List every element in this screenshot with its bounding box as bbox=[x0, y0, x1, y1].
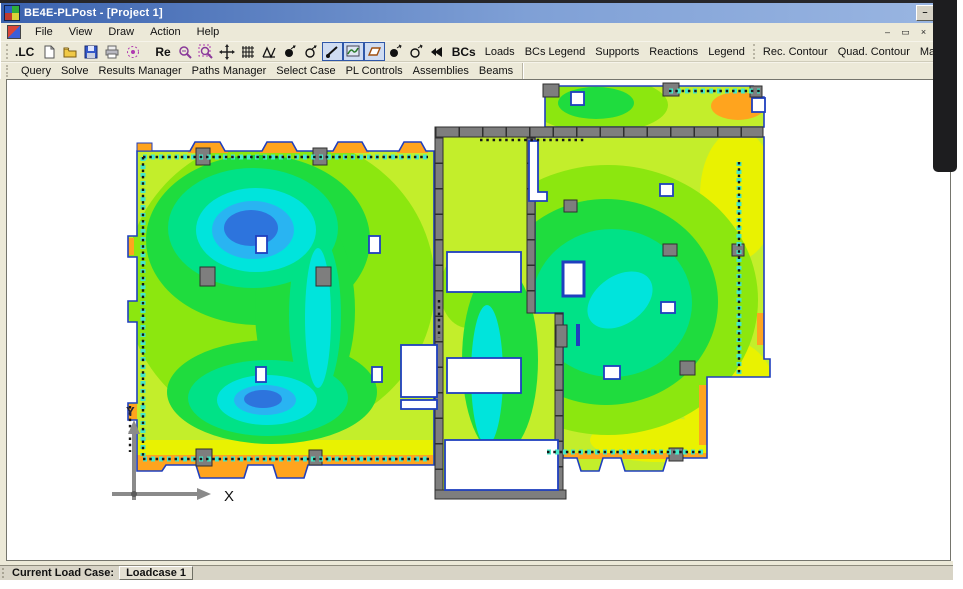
menu-help[interactable]: Help bbox=[189, 24, 228, 40]
load-case-value[interactable]: Loadcase 1 bbox=[119, 566, 193, 580]
open-folder-icon bbox=[62, 44, 78, 60]
node-outline-icon bbox=[303, 44, 319, 60]
zoom-window-icon bbox=[198, 44, 214, 60]
load-case-label: Current Load Case: bbox=[12, 567, 114, 579]
document-icon bbox=[7, 25, 21, 39]
zoom-out-icon bbox=[177, 44, 193, 60]
secondary-toolbar: Query Solve Results Manager Paths Manage… bbox=[1, 62, 957, 80]
contour-toggle-icon bbox=[346, 44, 361, 59]
column bbox=[663, 244, 677, 256]
strip-toggle-button[interactable] bbox=[322, 42, 343, 61]
node-icon bbox=[282, 44, 298, 60]
pan-icon bbox=[219, 44, 235, 60]
child-restore-button[interactable]: ▭ bbox=[898, 26, 913, 39]
new-button[interactable] bbox=[38, 42, 59, 61]
wall bbox=[435, 490, 566, 499]
print-icon bbox=[104, 44, 120, 60]
wall-pier bbox=[576, 324, 580, 346]
loads-arrows-icon bbox=[429, 44, 445, 60]
load-outline-button[interactable] bbox=[406, 42, 427, 61]
mesh-button[interactable] bbox=[259, 42, 280, 61]
opening bbox=[752, 98, 765, 112]
grid-button[interactable] bbox=[238, 42, 259, 61]
child-close-button[interactable]: × bbox=[916, 26, 931, 39]
opening bbox=[447, 252, 521, 292]
corner-tab bbox=[137, 143, 152, 151]
menu-draw[interactable]: Draw bbox=[100, 24, 142, 40]
patch-toggle-icon bbox=[367, 44, 382, 59]
toolbar-grip[interactable] bbox=[753, 44, 755, 59]
statusbar-grip bbox=[2, 568, 7, 578]
drawing-canvas[interactable]: X Y bbox=[6, 79, 951, 561]
right-white-column bbox=[957, 0, 963, 589]
opening bbox=[445, 440, 558, 490]
toolbar-grip[interactable] bbox=[6, 44, 8, 59]
loads-arrows-button[interactable] bbox=[427, 42, 448, 61]
wall bbox=[435, 127, 763, 137]
status-bar: Current Load Case: Loadcase 1 bbox=[0, 565, 953, 580]
paths-manager-button[interactable]: Paths Manager bbox=[187, 63, 272, 79]
column bbox=[680, 361, 695, 375]
print-button[interactable] bbox=[101, 42, 122, 61]
select-case-button[interactable]: Select Case bbox=[271, 63, 340, 79]
load-outline-icon bbox=[408, 44, 424, 60]
opening bbox=[401, 345, 437, 397]
bcs-button[interactable]: BCs bbox=[448, 44, 480, 60]
opening bbox=[571, 92, 584, 105]
zoom-extents-button[interactable] bbox=[122, 42, 143, 61]
child-minimize-button[interactable]: – bbox=[880, 26, 895, 39]
toolbar-separator bbox=[522, 63, 523, 79]
x-axis-label: X bbox=[224, 488, 234, 505]
menu-file[interactable]: File bbox=[27, 24, 61, 40]
node-outline-button[interactable] bbox=[301, 42, 322, 61]
contour-band bbox=[558, 87, 634, 119]
new-icon bbox=[41, 44, 57, 60]
opening bbox=[660, 184, 673, 196]
contour-band bbox=[244, 390, 282, 408]
app-icon bbox=[4, 5, 20, 21]
solve-button[interactable]: Solve bbox=[56, 63, 94, 79]
bcs-legend-button[interactable]: BCs Legend bbox=[520, 44, 591, 60]
load-button[interactable] bbox=[385, 42, 406, 61]
query-button[interactable]: Query bbox=[16, 63, 56, 79]
y-axis-label: Y bbox=[126, 404, 135, 419]
re-button[interactable]: Re bbox=[151, 44, 174, 60]
contour-toggle-button[interactable] bbox=[343, 42, 364, 61]
assemblies-button[interactable]: Assemblies bbox=[408, 63, 474, 79]
zoom-extents-icon bbox=[125, 44, 141, 60]
menu-bar: File View Draw Action Help – ▭ × bbox=[1, 23, 957, 41]
save-icon bbox=[83, 44, 99, 60]
strip-toggle-icon bbox=[325, 44, 340, 59]
foreground-window-strip bbox=[933, 0, 957, 172]
opening bbox=[372, 367, 382, 382]
opening bbox=[256, 236, 267, 253]
contour-band bbox=[128, 238, 134, 255]
contour-plot: X Y bbox=[7, 80, 950, 560]
mesh-icon bbox=[261, 44, 277, 60]
loads-text-button[interactable]: Loads bbox=[480, 44, 520, 60]
menu-view[interactable]: View bbox=[61, 24, 101, 40]
opening bbox=[401, 400, 437, 409]
column bbox=[316, 267, 331, 286]
grid-icon bbox=[240, 44, 256, 60]
column bbox=[543, 84, 559, 97]
beams-button[interactable]: Beams bbox=[474, 63, 518, 79]
pl-controls-button[interactable]: PL Controls bbox=[341, 63, 408, 79]
load-icon bbox=[387, 44, 403, 60]
reactions-button[interactable]: Reactions bbox=[644, 44, 703, 60]
opening bbox=[256, 367, 266, 382]
contour-band bbox=[224, 210, 278, 246]
axis-origin bbox=[131, 491, 137, 497]
rec-contour-button[interactable]: Rec. Contour bbox=[758, 44, 833, 60]
column bbox=[200, 267, 215, 286]
pan-button[interactable] bbox=[217, 42, 238, 61]
lc-button[interactable]: .LC bbox=[11, 44, 38, 60]
patch-toggle-button[interactable] bbox=[364, 42, 385, 61]
opening bbox=[604, 366, 620, 379]
column bbox=[564, 200, 577, 212]
zoom-out-button[interactable] bbox=[175, 42, 196, 61]
minimize-button[interactable]: – bbox=[916, 5, 934, 21]
window-title: BE4E-PLPost - [Project 1] bbox=[24, 7, 163, 19]
left-slab-contours bbox=[125, 135, 440, 483]
opening bbox=[661, 302, 675, 313]
node-button[interactable] bbox=[280, 42, 301, 61]
supports-button[interactable]: Supports bbox=[590, 44, 644, 60]
menu-action[interactable]: Action bbox=[142, 24, 189, 40]
toolbar-grip[interactable] bbox=[6, 65, 13, 78]
quad-contour-button[interactable]: Quad. Contour bbox=[833, 44, 915, 60]
results-manager-button[interactable]: Results Manager bbox=[94, 63, 187, 79]
open-button[interactable] bbox=[59, 42, 80, 61]
opening bbox=[447, 358, 521, 393]
column bbox=[556, 325, 567, 347]
opening bbox=[369, 236, 380, 253]
zoom-window-button[interactable] bbox=[196, 42, 217, 61]
opening bbox=[563, 262, 584, 296]
main-toolbar: .LC Re BCs Loads BCs Legend Supports Rea… bbox=[1, 41, 957, 62]
save-button[interactable] bbox=[80, 42, 101, 61]
x-axis-arrow bbox=[197, 488, 211, 500]
title-bar: BE4E-PLPost - [Project 1] – ▭ bbox=[1, 3, 957, 23]
legend-button[interactable]: Legend bbox=[703, 44, 750, 60]
